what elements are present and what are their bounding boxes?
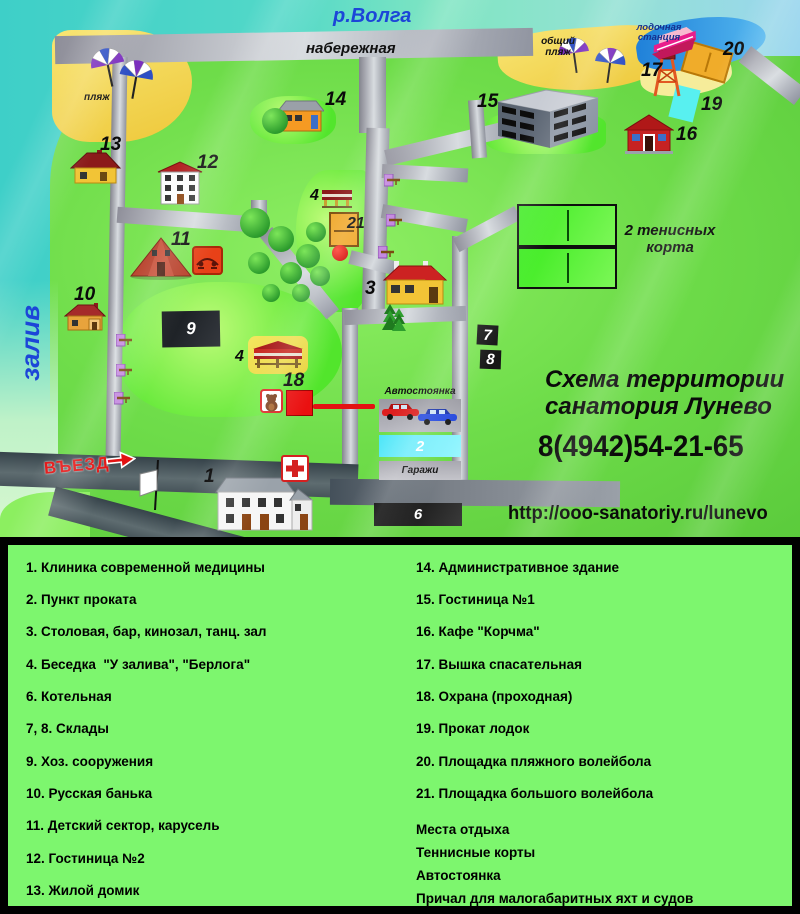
building-16-cafe — [624, 113, 674, 155]
court-line — [567, 210, 569, 241]
tree — [280, 262, 302, 284]
embankment-label: набережная — [306, 40, 396, 57]
label-21: 21 — [347, 215, 365, 233]
beach-umbrella-icon — [112, 53, 159, 103]
legend-item: 16. Кафе "Корчма" — [416, 616, 796, 648]
pavilion-4-island — [320, 186, 354, 208]
legend-spacer — [416, 810, 796, 818]
marker-9: 9 — [186, 319, 196, 339]
legend-extra-item: Теннисные корты — [416, 841, 796, 864]
label-12: 12 — [197, 152, 218, 174]
court-line — [567, 253, 569, 283]
legend-panel: 1. Клиника современной медицины 2. Пункт… — [0, 537, 800, 914]
legend-extra-item: Причал для малогабаритных яхт и судов — [416, 887, 796, 910]
tree — [240, 208, 270, 238]
legend-item: 4. Беседка "У залива", "Берлога" — [26, 648, 396, 680]
building-3-canteen — [381, 261, 449, 309]
boat-station-line2: станция — [638, 32, 680, 43]
legend-item: 9. Хоз. сооружения — [26, 745, 396, 777]
legend-column-left: 1. Клиника современной медицины 2. Пункт… — [26, 551, 396, 907]
building-15-hotel1 — [490, 86, 604, 152]
legend-item: 12. Гостиница №2 — [26, 842, 396, 874]
label-20: 20 — [723, 39, 744, 61]
tree — [248, 252, 270, 274]
label-4a: 4 — [310, 187, 319, 205]
legend-item: 6. Котельная — [26, 680, 396, 712]
beach-label: пляж — [84, 92, 110, 103]
tennis-court-2 — [517, 247, 617, 289]
legend-extra-item: Места отдыха — [416, 818, 796, 841]
red-car — [381, 402, 421, 420]
bench-icon — [114, 392, 131, 405]
label-18: 18 — [283, 370, 304, 392]
legend-item: 10. Русская банька — [26, 777, 396, 809]
blue-car — [417, 407, 459, 425]
legend-item: 17. Вышка спасательная — [416, 648, 796, 680]
legend-item: 1. Клиника современной медицины — [26, 551, 396, 583]
road-center — [359, 57, 386, 133]
tree — [262, 284, 280, 302]
court-line — [704, 52, 711, 72]
garages-bar: Гаражи — [379, 461, 461, 480]
label-15: 15 — [477, 91, 498, 113]
tree — [296, 244, 320, 268]
rental-point-2: 2 — [379, 435, 461, 457]
legend-item: 3. Столовая, бар, кинозал, танц. зал — [26, 616, 396, 648]
warehouse-7: 7 — [476, 324, 498, 345]
label-1: 1 — [204, 466, 215, 488]
territory-map: Автостоянка 2 Гаражи 6 7 8 9 — [0, 0, 800, 537]
pine-tree — [392, 308, 406, 333]
building-10-banya — [64, 302, 106, 336]
label-3: 3 — [365, 278, 376, 300]
tree — [292, 284, 310, 302]
legend-item: 7, 8. Склады — [26, 713, 396, 745]
red-circle — [332, 245, 348, 261]
website-url: http://ooo-sanatoriy.ru/lunevo — [508, 503, 768, 525]
label-10: 10 — [74, 284, 95, 306]
label-4b: 4 — [235, 348, 244, 366]
legend-column-right: 14. Административное здание 15. Гостиниц… — [416, 551, 796, 910]
bench-icon — [386, 214, 403, 227]
bench-icon — [384, 174, 401, 187]
phone-number: 8(4942)54-21-65 — [538, 430, 744, 464]
bench-icon — [116, 364, 133, 377]
boat-station-label: лодочная станция — [626, 23, 692, 43]
bench-icon — [116, 334, 133, 347]
legend-item: 13. Жилой домик — [26, 874, 396, 906]
parking-pad — [379, 399, 461, 432]
bear-icon — [260, 389, 283, 413]
legend-item: 18. Охрана (проходная) — [416, 680, 796, 712]
warehouse-8: 8 — [480, 350, 502, 370]
legend-item: 14. Административное здание — [416, 551, 796, 583]
beach-umbrella-icon — [589, 42, 630, 87]
legend-extra-item: Автостоянка — [416, 864, 796, 887]
marker-8: 8 — [486, 351, 495, 368]
bench-icon — [378, 246, 395, 259]
legend-item: 19. Прокат лодок — [416, 713, 796, 745]
label-11: 11 — [171, 229, 191, 251]
building-1-clinic — [214, 474, 314, 534]
tennis-line1: 2 тенисных — [625, 222, 716, 239]
tennis-court-1 — [517, 204, 617, 247]
map-title-line2: санатория Лунево — [545, 393, 772, 421]
legend-item: 11. Детский сектор, карусель — [26, 810, 396, 842]
tennis-label: 2 тенисных корта — [620, 222, 720, 256]
legend-item: 20. Площадка пляжного волейбола — [416, 745, 796, 777]
tree — [306, 222, 326, 242]
label-14: 14 — [325, 89, 346, 111]
checkpoint-18 — [286, 390, 313, 416]
map-poster: Автостоянка 2 Гаражи 6 7 8 9 — [0, 0, 800, 914]
public-beach-line2: пляж — [545, 47, 571, 58]
gulf-label: залив — [15, 288, 45, 398]
marker-6: 6 — [414, 506, 422, 523]
river-label: р.Волга — [333, 5, 411, 28]
entrance-flag — [138, 458, 162, 512]
boiler-6: 6 — [374, 503, 462, 526]
utility-9: 9 — [162, 310, 221, 347]
carousel-icon — [192, 246, 223, 275]
garages-label: Гаражи — [402, 465, 439, 476]
label-13: 13 — [100, 134, 121, 156]
public-beach-label: общий пляж — [530, 36, 586, 58]
legend-item: 21. Площадка большого волейбола — [416, 777, 796, 809]
public-beach-line1: общий — [541, 36, 575, 47]
barrier-line — [313, 404, 375, 409]
marker-2: 2 — [416, 438, 424, 455]
tree — [262, 108, 288, 134]
pavilion-4-berloga — [252, 340, 304, 370]
label-19: 19 — [701, 94, 722, 116]
tree — [310, 266, 330, 286]
label-17: 17 — [641, 60, 662, 82]
entrance-arrow-icon — [105, 447, 137, 472]
road-loop-left — [342, 308, 358, 484]
label-16: 16 — [676, 124, 697, 146]
parking-label: Автостоянка — [379, 386, 461, 397]
legend-item: 2. Пункт проката — [26, 583, 396, 615]
legend-item: 15. Гостиница №1 — [416, 583, 796, 615]
tree — [268, 226, 294, 252]
tennis-line2: корта — [646, 239, 694, 256]
map-title-line1: Схема территории — [545, 366, 784, 394]
medical-cross-sign — [281, 455, 309, 482]
marker-7: 7 — [483, 326, 492, 343]
